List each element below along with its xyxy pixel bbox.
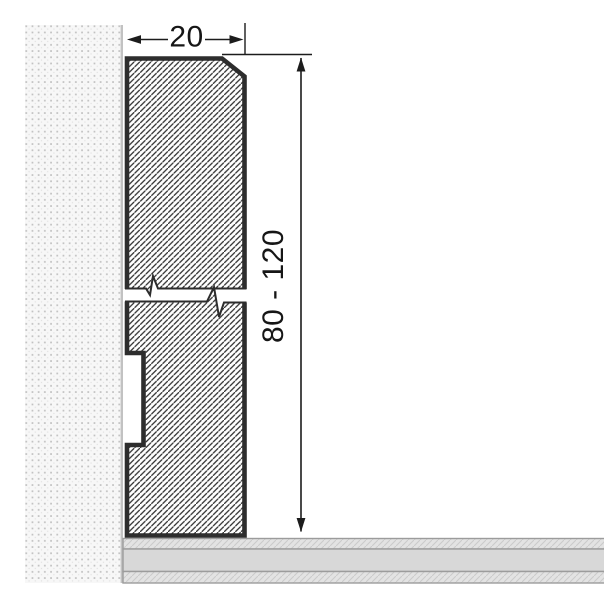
- profile-upper-hatch: [127, 59, 245, 296]
- floor-middle-layer: [123, 549, 604, 572]
- arrow-right-icon: [230, 35, 244, 44]
- skirting-profile-upper: [125, 59, 247, 296]
- skirting-profile-lower: [125, 287, 247, 536]
- arrow-up-icon: [297, 58, 306, 72]
- width-dimension-label: 20: [169, 21, 203, 54]
- floor-bottom-layer: [123, 572, 604, 584]
- wall-stipple-area: [25, 25, 121, 583]
- wall-section: [25, 25, 122, 583]
- width-dimension: 20: [127, 21, 245, 55]
- diagram-canvas: 20 80 - 120: [0, 0, 604, 604]
- height-dimension-label: 80 - 120: [257, 229, 290, 343]
- arrow-down-icon: [297, 518, 306, 532]
- floor-section: [123, 539, 604, 584]
- floor-top-layer: [123, 539, 604, 550]
- arrow-left-icon: [127, 35, 141, 44]
- cross-section-drawing: 20 80 - 120: [0, 0, 604, 604]
